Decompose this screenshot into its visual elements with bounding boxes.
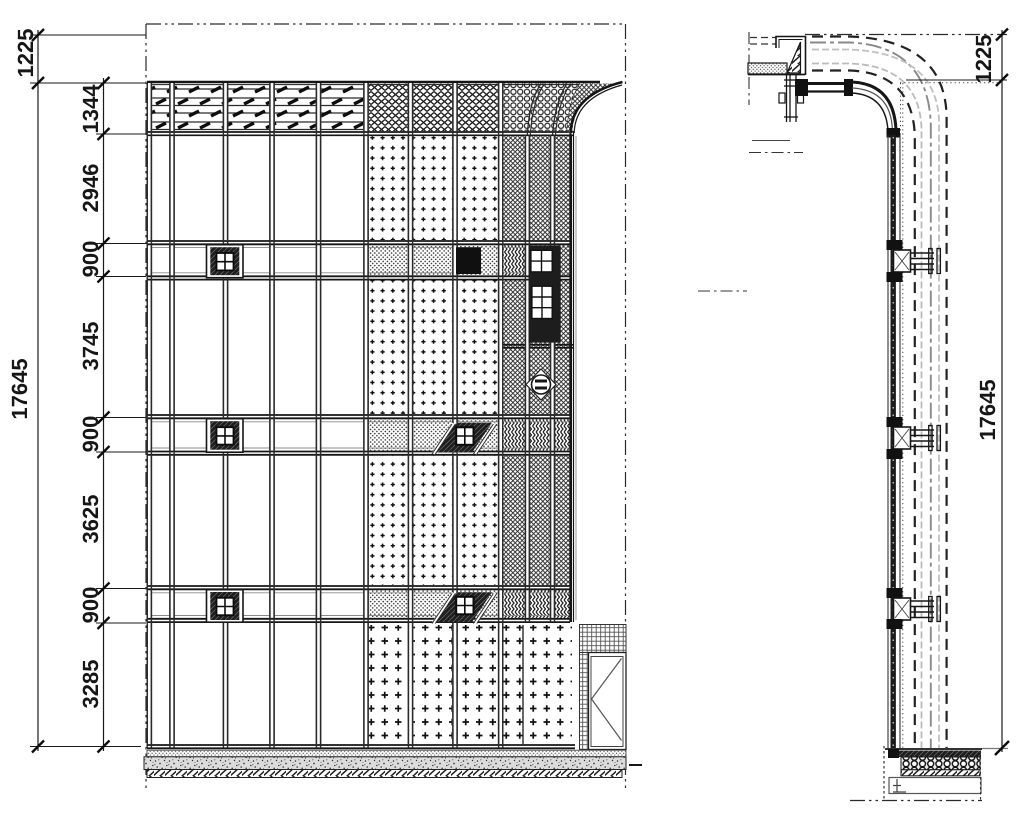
svg-text:3745: 3745 xyxy=(78,322,103,371)
svg-text:1344: 1344 xyxy=(78,84,103,134)
svg-text:900: 900 xyxy=(78,241,103,278)
svg-text:17645: 17645 xyxy=(7,358,32,419)
svg-text:3625: 3625 xyxy=(78,495,103,544)
svg-text:900: 900 xyxy=(78,587,103,624)
svg-text:900: 900 xyxy=(78,416,103,453)
svg-text:2946: 2946 xyxy=(78,164,103,213)
svg-text:1225: 1225 xyxy=(971,35,996,84)
svg-text:3285: 3285 xyxy=(78,660,103,709)
svg-text:1225: 1225 xyxy=(13,29,38,78)
svg-text:17645: 17645 xyxy=(975,379,1000,440)
